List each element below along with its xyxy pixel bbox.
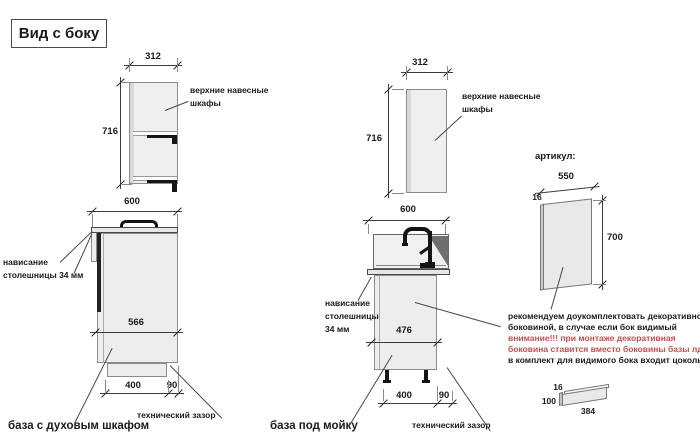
extension-line — [593, 284, 606, 285]
note-line-5: в комплект для видимого бока входит цоко… — [508, 355, 700, 366]
dim-700: 700 — [607, 232, 623, 243]
dim-16-panel: 16 — [530, 192, 544, 202]
label-line: шкафы — [190, 97, 269, 110]
cabinet-name-middle: база под мойку — [270, 420, 358, 432]
label-line: нависание — [3, 256, 83, 269]
cabinet-back-edge — [407, 90, 411, 192]
dim-line — [87, 211, 182, 212]
dim-312-middle: 312 — [405, 57, 435, 68]
dim-550: 550 — [551, 171, 581, 182]
extension-line — [452, 391, 453, 401]
dim-line — [366, 342, 442, 343]
dim-384-plinth: 384 — [573, 406, 603, 416]
base-cabinet-sink — [374, 275, 437, 370]
dim-476: 476 — [389, 325, 419, 336]
extension-line — [122, 82, 132, 83]
dim-100-plinth: 100 — [534, 396, 556, 406]
note-line-3-warning: внимание!!! при монтаже декоративная — [508, 333, 676, 344]
faucet-arc — [403, 227, 432, 238]
extension-line — [447, 66, 448, 80]
label-line: нависание — [325, 297, 379, 310]
dim-716-middle: 716 — [356, 133, 382, 144]
note-line-2: боковиной, в случае если бок видимый — [508, 322, 677, 333]
wall-cabinet-label-middle: верхние навесные шкафы — [462, 90, 541, 116]
label-line: шкафы — [462, 103, 541, 116]
extension-line — [445, 224, 446, 234]
dim-line — [378, 403, 457, 404]
label-line: столешницы 34 мм — [3, 269, 83, 282]
label-line: 34 мм — [325, 323, 379, 336]
dim-16-plinth: 16 — [551, 382, 565, 392]
label-line: верхние навесные — [462, 90, 541, 103]
dim-line — [602, 195, 603, 290]
drawing-canvas: Вид с боку 312 716 верхние навесные шкаф… — [0, 0, 700, 438]
dim-400-middle: 400 — [389, 390, 419, 401]
dim-line — [363, 220, 450, 221]
dim-line — [100, 393, 184, 394]
dim-312-left: 312 — [138, 51, 168, 62]
dim-600-middle: 600 — [393, 204, 423, 215]
extension-line — [105, 380, 106, 392]
note-line-1: рекомендуем доукомплектовать декоративно… — [508, 311, 700, 322]
extension-line — [392, 193, 404, 194]
dim-400-left: 400 — [118, 380, 148, 391]
extension-line — [406, 66, 407, 80]
overhang-label-left: нависание столешницы 34 мм — [3, 256, 83, 282]
plinth-left — [107, 363, 167, 377]
front-panel-line — [103, 233, 104, 363]
dim-line — [120, 77, 121, 189]
sink-bottom-line — [376, 265, 446, 266]
cabinet-leg — [424, 370, 428, 380]
dim-716-left: 716 — [92, 126, 118, 137]
extension-line — [129, 58, 130, 72]
extension-line — [168, 380, 169, 392]
front-panel-line — [379, 275, 380, 370]
cabinet-leg-foot — [383, 380, 391, 383]
leader-line — [75, 348, 113, 423]
overhang-label-middle: нависание столешницы 34 мм — [325, 297, 379, 336]
faucet-tip — [402, 243, 408, 246]
label-line: столешницы — [325, 310, 379, 323]
extension-line — [177, 58, 178, 72]
decor-side-panel — [543, 198, 592, 290]
dim-line — [90, 332, 183, 333]
gola-profile — [172, 180, 177, 192]
dim-line — [388, 84, 389, 198]
dim-600-left: 600 — [117, 196, 147, 207]
dim-566: 566 — [121, 317, 151, 328]
extension-line — [383, 389, 384, 401]
extension-line — [92, 214, 93, 227]
page-title: Вид с боку — [11, 19, 107, 48]
gola-profile — [172, 135, 177, 144]
extension-line — [593, 200, 606, 201]
extension-line — [177, 214, 178, 227]
extension-line — [392, 89, 404, 90]
tech-gap-label-middle: технический зазор — [412, 419, 491, 432]
wall-cabinet-middle — [406, 89, 447, 193]
cabinet-leg — [385, 370, 389, 380]
extension-line — [122, 184, 132, 185]
wall-cabinet-label-left: верхние навесные шкафы — [190, 84, 269, 110]
faucet-base — [425, 262, 435, 268]
panel-heading: артикул: — [535, 150, 576, 163]
extension-line — [178, 366, 179, 392]
cabinet-name-left: база с духовым шкафом — [8, 420, 149, 432]
dim-line — [124, 65, 182, 66]
note-line-4-warning: боковина ставится вместо боковины базы л… — [508, 344, 700, 355]
extension-line — [368, 224, 369, 234]
cabinet-leg-foot — [422, 380, 430, 383]
base-cabinet-oven — [97, 233, 178, 363]
oven-door-strip — [97, 233, 101, 312]
extension-line — [437, 386, 438, 401]
label-line: верхние навесные — [190, 84, 269, 97]
leader-line — [350, 355, 393, 425]
